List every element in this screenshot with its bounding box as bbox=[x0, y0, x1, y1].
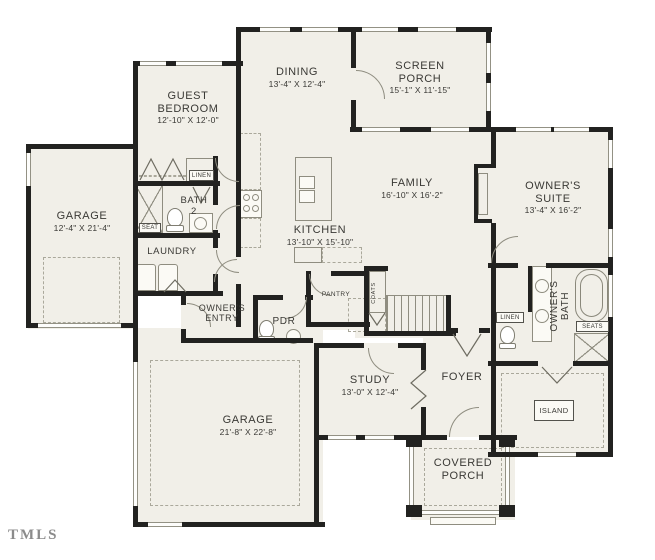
room-dims-guest-bedroom: 12'-10" X 12'-0" bbox=[142, 116, 234, 126]
room-dims-study: 13'-0" X 12'-4" bbox=[322, 388, 418, 398]
room-dims-garage-main: 21'-8" X 22'-8" bbox=[193, 428, 303, 438]
room-label-pdr: PDR bbox=[266, 316, 302, 327]
family-foyer-chevron bbox=[453, 334, 481, 356]
entry-closet-chevron bbox=[164, 280, 186, 292]
room-label-group-owners-entry: OWNER'S ENTRY bbox=[187, 303, 257, 324]
room-label-study: STUDY bbox=[322, 374, 418, 387]
room-label-garage-side: GARAGE bbox=[36, 210, 128, 223]
room-label-owners-bath: OWNER'S BATH bbox=[549, 266, 575, 346]
tmls-watermark: TMLS bbox=[8, 527, 59, 544]
room-label-foyer: FOYER bbox=[430, 371, 494, 384]
room-dims-garage-side: 12'-4" X 21'-4" bbox=[36, 224, 128, 234]
room-label-guest-bedroom: GUEST BEDROOM bbox=[142, 90, 234, 115]
room-dims-owners-suite: 13'-4" X 16'-2" bbox=[518, 206, 588, 216]
room-label-owners-suite: OWNER'S SUITE bbox=[518, 180, 588, 205]
room-dims-screen-porch: 15'-1" X 11'-15" bbox=[380, 86, 460, 96]
room-label-group-family: FAMILY 16'-10" X 16'-2" bbox=[357, 177, 467, 200]
owners-closet-door-chevron bbox=[542, 367, 572, 383]
room-label-group-owners-suite: OWNER'S SUITE 13'-4" X 16'-2" bbox=[518, 180, 588, 216]
room-label-group-study: STUDY 13'-0" X 12'-4" bbox=[322, 374, 418, 397]
floor-plan: GUEST BEDROOM 12'-10" X 12'-0" DINING 13… bbox=[0, 0, 655, 560]
linen-bath-tag: LINEN bbox=[496, 312, 524, 323]
room-label-group-foyer: FOYER bbox=[430, 371, 494, 384]
room-label-coats: COATS bbox=[371, 265, 383, 321]
room-label-owners-entry: OWNER'S ENTRY bbox=[187, 303, 257, 324]
room-label-group-garage-side: GARAGE 12'-4" X 21'-4" bbox=[36, 210, 128, 233]
room-dims-family: 16'-10" X 16'-2" bbox=[357, 191, 467, 201]
room-label-group-dining: DINING 13'-4" X 12'-4" bbox=[247, 66, 347, 89]
room-label-dining: DINING bbox=[247, 66, 347, 79]
room-label-kitchen: KITCHEN bbox=[270, 224, 370, 237]
room-label-group-covered-porch: COVERED PORCH bbox=[419, 457, 507, 482]
room-dims-dining: 13'-4" X 12'-4" bbox=[247, 80, 347, 90]
guest-closet-bifold bbox=[140, 159, 184, 180]
room-label-screen-porch: SCREEN PORCH bbox=[380, 60, 460, 85]
room-dims-kitchen: 13'-10" X 15'-10" bbox=[270, 238, 370, 248]
room-label-group-kitchen: KITCHEN 13'-10" X 15'-10" bbox=[270, 224, 370, 247]
room-label-garage-main: GARAGE bbox=[193, 414, 303, 427]
room-label-pantry: PANTRY bbox=[312, 291, 360, 298]
linen-hall-tag: LINEN bbox=[189, 170, 214, 181]
room-label-group-garage-main: GARAGE 21'-8" X 22'-8" bbox=[193, 414, 303, 437]
seats-tag: SEATS bbox=[576, 321, 609, 332]
room-label-laundry: LAUNDRY bbox=[136, 247, 208, 258]
room-label-covered-porch: COVERED PORCH bbox=[419, 457, 507, 482]
room-label-group-screen-porch: SCREEN PORCH 15'-1" X 11'-15" bbox=[380, 60, 460, 96]
island-tag: ISLAND bbox=[534, 400, 574, 421]
room-label-bath2: BATH 2 bbox=[177, 196, 211, 218]
seat-tag: SEAT bbox=[139, 223, 161, 233]
room-label-family: FAMILY bbox=[357, 177, 467, 190]
room-label-group-guest-bedroom: GUEST BEDROOM 12'-10" X 12'-0" bbox=[142, 90, 234, 126]
